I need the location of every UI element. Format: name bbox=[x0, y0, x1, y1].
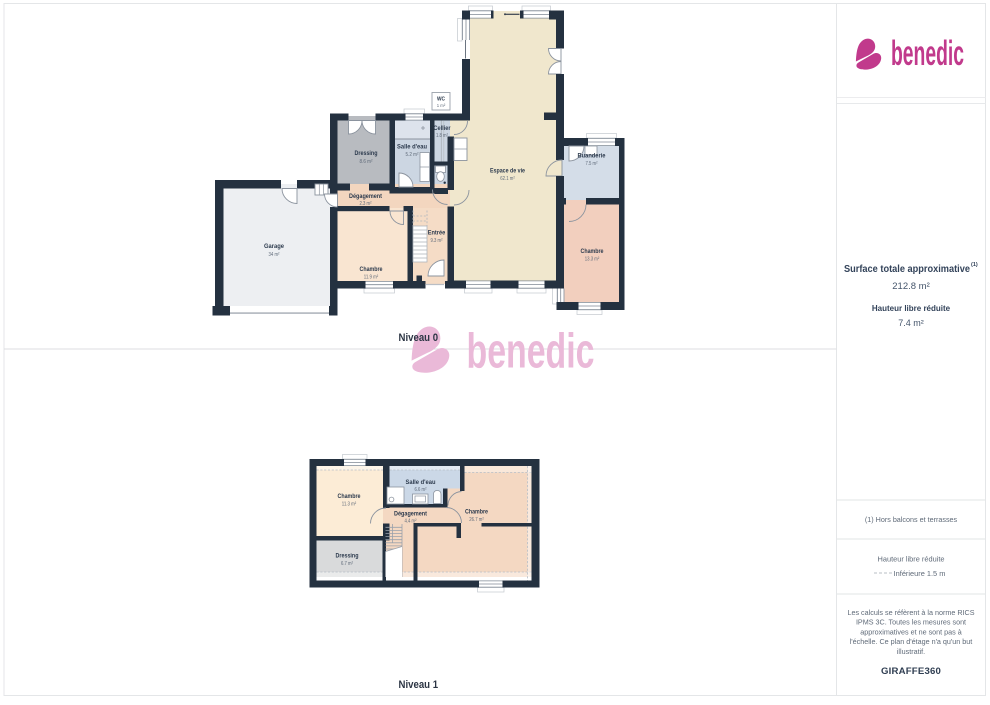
svg-text:(1) Hors balcons et terrasses: (1) Hors balcons et terrasses bbox=[865, 515, 958, 524]
svg-text:Dressing: Dressing bbox=[336, 553, 359, 560]
svg-text:Surface totale approximative: Surface totale approximative bbox=[844, 264, 970, 275]
svg-text:Inférieure 1.5 m: Inférieure 1.5 m bbox=[894, 569, 946, 578]
svg-text:illustratif.: illustratif. bbox=[897, 647, 925, 656]
svg-text:9.3 m²: 9.3 m² bbox=[431, 238, 443, 244]
svg-text:8.6 m²: 8.6 m² bbox=[360, 159, 373, 165]
svg-text:Chambre: Chambre bbox=[360, 266, 383, 273]
svg-text:benedic: benedic bbox=[467, 325, 595, 379]
svg-text:Salle d'eau: Salle d'eau bbox=[406, 479, 436, 486]
svg-text:Niveau 1: Niveau 1 bbox=[399, 679, 439, 691]
svg-text:7.4 m²: 7.4 m² bbox=[898, 318, 924, 328]
svg-text:11.3 m²: 11.3 m² bbox=[342, 502, 357, 508]
svg-text:approximatives et ne sont pas: approximatives et ne sont pas à bbox=[860, 627, 961, 636]
svg-text:2.3 m²: 2.3 m² bbox=[360, 201, 372, 207]
svg-text:5.2 m²: 5.2 m² bbox=[406, 152, 419, 158]
svg-text:Hauteur libre réduite: Hauteur libre réduite bbox=[872, 304, 951, 313]
svg-text:34 m²: 34 m² bbox=[269, 252, 280, 258]
svg-text:IPMS 3C. Toutes les mesures so: IPMS 3C. Toutes les mesures sont bbox=[856, 618, 966, 627]
svg-text:Dégagement: Dégagement bbox=[394, 511, 428, 518]
svg-text:GIRAFFE360: GIRAFFE360 bbox=[881, 666, 941, 677]
svg-text:Entrée: Entrée bbox=[428, 230, 446, 237]
svg-text:13.3 m²: 13.3 m² bbox=[585, 257, 600, 263]
svg-text:benedic: benedic bbox=[891, 34, 964, 73]
svg-text:Salle d'eau: Salle d'eau bbox=[397, 144, 427, 151]
svg-text:Chambre: Chambre bbox=[338, 493, 361, 500]
svg-text:Buanderie: Buanderie bbox=[578, 153, 606, 160]
svg-text:WC: WC bbox=[437, 97, 445, 103]
svg-text:11.9 m²: 11.9 m² bbox=[364, 275, 379, 281]
svg-text:Hauteur libre réduite: Hauteur libre réduite bbox=[878, 555, 945, 564]
svg-text:Chambre: Chambre bbox=[581, 248, 604, 255]
svg-text:7.5 m²: 7.5 m² bbox=[586, 161, 598, 167]
svg-text:Les calculs se réfèrent à la n: Les calculs se réfèrent à la norme RICS bbox=[847, 608, 974, 617]
svg-text:l'échelle. Ce plan d'étage n'a: l'échelle. Ce plan d'étage n'a qu'un but bbox=[850, 637, 973, 646]
svg-text:62.1 m²: 62.1 m² bbox=[500, 176, 515, 182]
svg-text:6.6 m²: 6.6 m² bbox=[415, 487, 427, 493]
svg-text:212.8 m²: 212.8 m² bbox=[892, 281, 930, 292]
svg-text:(1): (1) bbox=[971, 262, 978, 268]
svg-text:Garage: Garage bbox=[264, 243, 284, 250]
svg-text:Chambre: Chambre bbox=[465, 509, 488, 516]
svg-text:Espace de vie: Espace de vie bbox=[490, 168, 525, 175]
svg-text:4.4 m²: 4.4 m² bbox=[405, 519, 417, 525]
svg-text:6.7 m²: 6.7 m² bbox=[341, 561, 353, 567]
svg-text:Niveau 0: Niveau 0 bbox=[399, 332, 439, 344]
svg-text:Cellier: Cellier bbox=[434, 125, 452, 132]
svg-text:Dressing: Dressing bbox=[355, 150, 378, 157]
svg-text:26.7 m²: 26.7 m² bbox=[469, 517, 484, 523]
svg-text:1 m²: 1 m² bbox=[437, 103, 446, 108]
svg-text:Dégagement: Dégagement bbox=[349, 193, 383, 200]
svg-text:1.8 m²: 1.8 m² bbox=[436, 133, 448, 139]
